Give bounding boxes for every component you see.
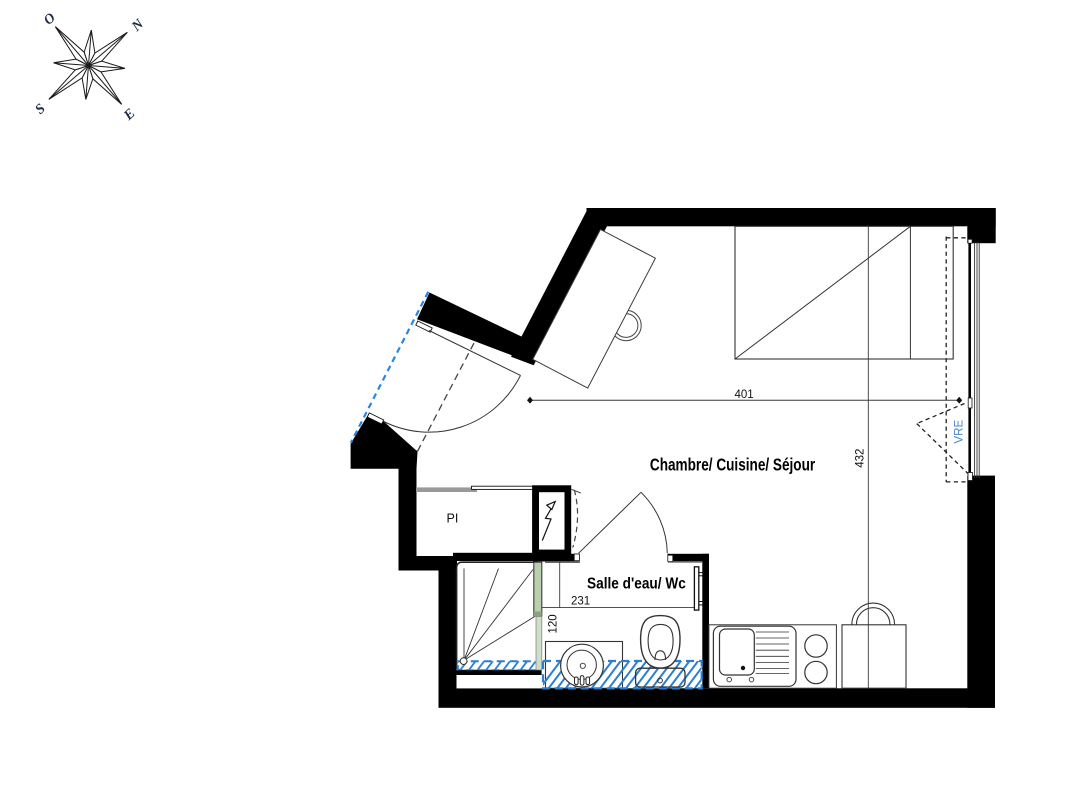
- svg-text:231: 231: [571, 596, 590, 608]
- svg-text:Chambre/ Cuisine/ Séjour: Chambre/ Cuisine/ Séjour: [650, 454, 815, 474]
- svg-text:401: 401: [735, 389, 754, 401]
- svg-text:432: 432: [855, 449, 867, 468]
- svg-text:120: 120: [548, 614, 560, 633]
- svg-text:PI: PI: [447, 512, 459, 526]
- svg-text:Salle d'eau/ Wc: Salle d'eau/ Wc: [587, 575, 686, 592]
- svg-text:VRE: VRE: [954, 420, 966, 444]
